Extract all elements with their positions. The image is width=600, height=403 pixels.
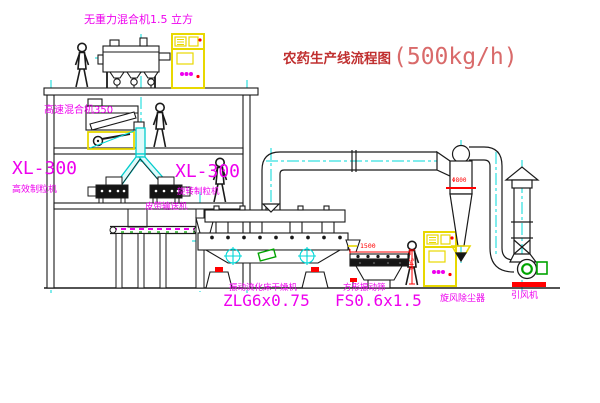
label-granulator-right-model: XL-300 (175, 163, 240, 181)
exhaust-stack (506, 167, 538, 262)
label-granulator-right-name: 旋转制粒机 (177, 188, 220, 197)
dimension-screen-height: 540 (408, 258, 415, 270)
belt-conveyor (110, 227, 200, 234)
title-capacity: (500kg/h) (393, 44, 518, 70)
title-text: 农药生产线流程图 (283, 47, 391, 67)
induced-draft-fan (512, 260, 547, 288)
dimension-cyclone-diameter: Φ800 (452, 178, 466, 184)
fluid-bed-dryer (196, 206, 348, 288)
control-cabinet-top (172, 34, 204, 88)
exhaust-duct (262, 150, 450, 212)
granulator-left (88, 177, 128, 203)
fan-inlet-pipe (469, 147, 514, 272)
label-screen-model: FS0.6x1.5 (335, 293, 422, 309)
dimension-screen-length: 1500 (360, 243, 376, 250)
worker-roof (76, 43, 89, 87)
vibrating-screen (346, 240, 415, 288)
control-cabinet-ground (424, 232, 456, 286)
label-granulator-left-name: 高效制粒机 (12, 186, 57, 195)
worker-floor2 (154, 103, 167, 147)
label-dryer-model: ZLG6x0.75 (223, 293, 310, 309)
label-high-speed-mixer: 高速混合机350 (44, 106, 113, 116)
label-fan: 引风机 (511, 292, 538, 301)
gravity-free-mixer (98, 38, 170, 88)
drawing-canvas: 农药生产线流程图 (500kg/h) 无重力混合机1.5 立方 高速混合机350… (0, 0, 600, 403)
high-speed-mixer-screw-unit (88, 131, 134, 149)
label-gravity-mixer: 无重力混合机1.5 立方 (84, 14, 193, 25)
drawing-title: 农药生产线流程图 (500kg/h) (283, 44, 518, 70)
label-granulator-left-model: XL-300 (12, 160, 77, 178)
label-belt-conveyor: 皮带输送机 (145, 203, 188, 212)
label-cyclone: 旋风除尘器 (440, 295, 485, 304)
